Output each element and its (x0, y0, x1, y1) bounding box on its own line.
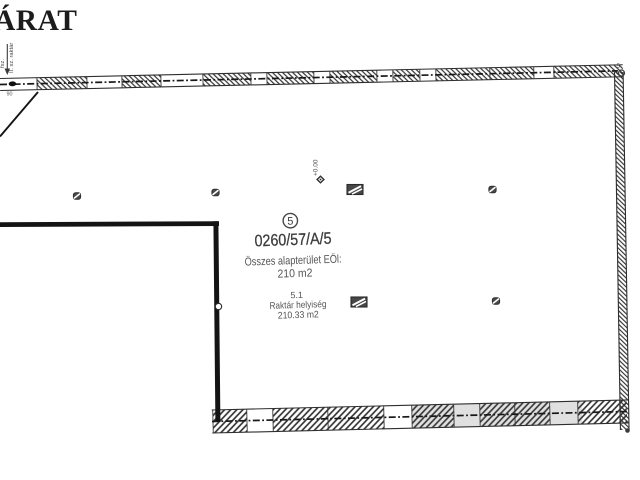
svg-text:ÁRAT: ÁRAT (0, 4, 77, 37)
svg-text:5.1: 5.1 (290, 290, 303, 300)
svg-text:+0.00: +0.00 (313, 159, 320, 176)
svg-text:210 m2: 210 m2 (277, 268, 312, 281)
svg-text:90: 90 (7, 92, 13, 98)
svg-text:0260/57/A/5: 0260/57/A/5 (254, 230, 332, 251)
svg-text:210.33 m2: 210.33 m2 (278, 309, 319, 321)
svg-text:fsz.: fsz. (0, 59, 6, 68)
svg-text:II. sz. raktár: II. sz. raktár (9, 43, 15, 73)
svg-text:5: 5 (287, 216, 293, 228)
svg-text:Összes alapterület EÖl:: Összes alapterület EÖl: (244, 254, 341, 269)
